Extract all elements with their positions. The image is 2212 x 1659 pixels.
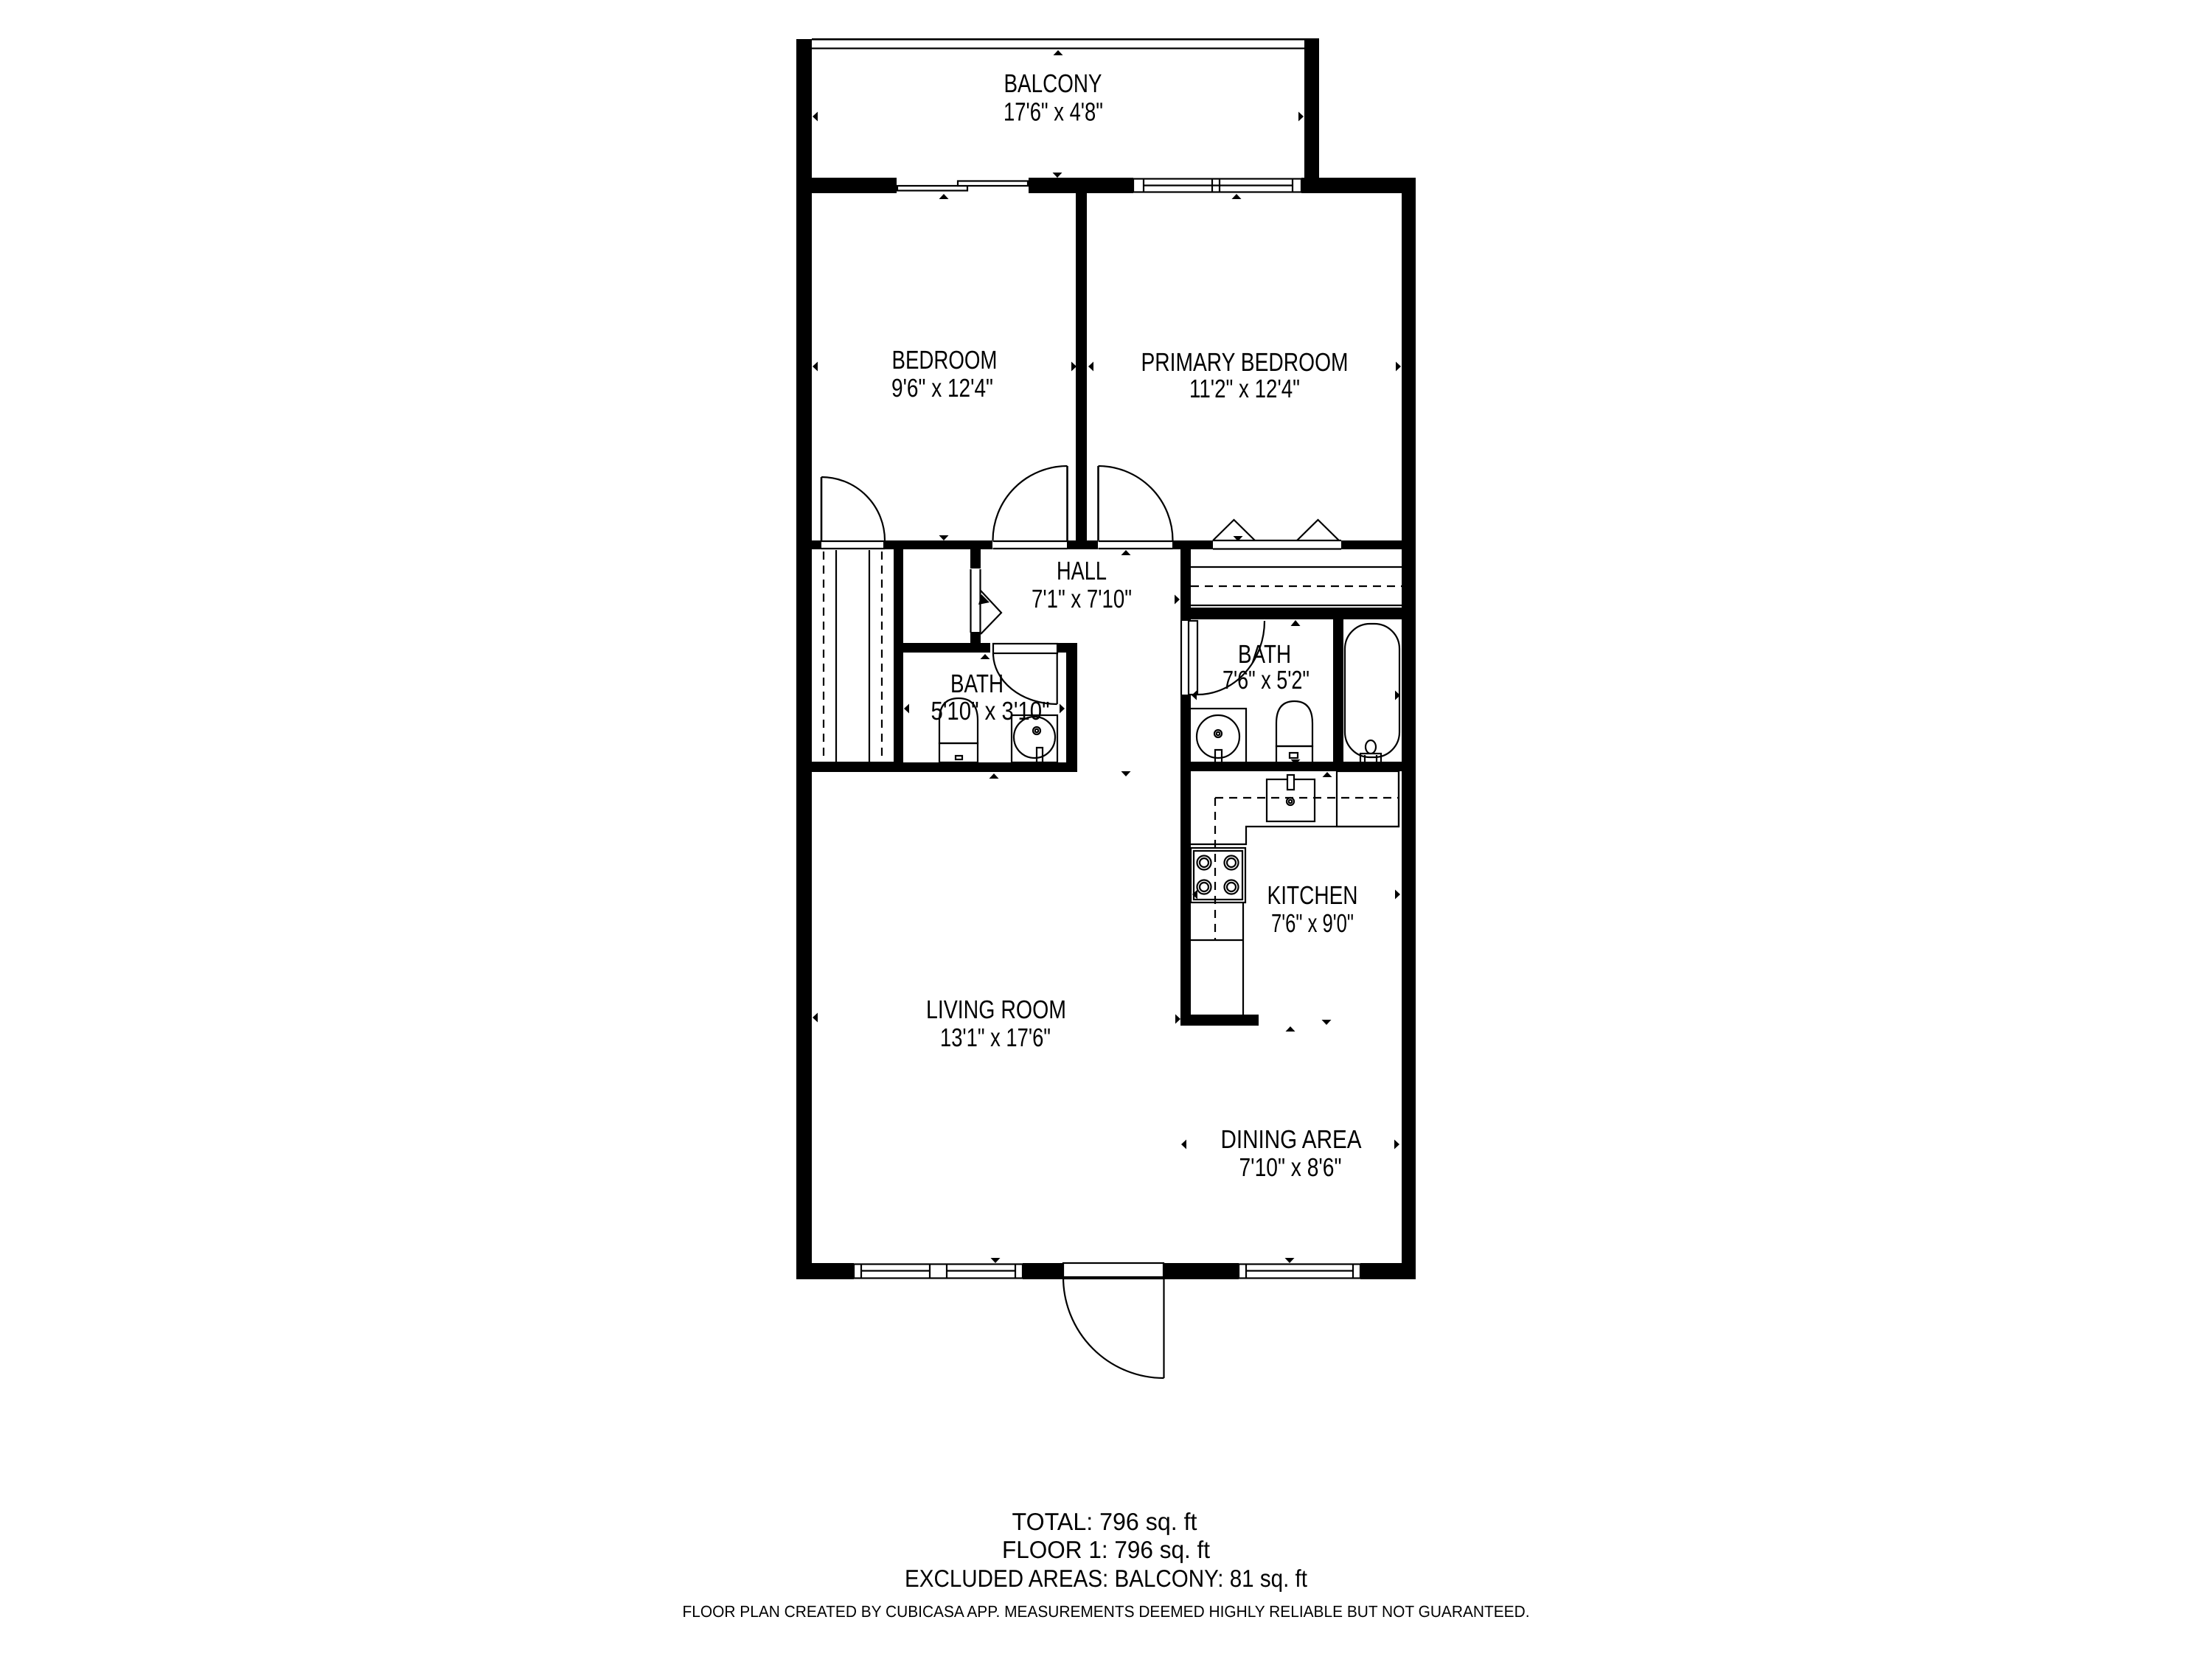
svg-text:7'6" x 5'2": 7'6" x 5'2" (1222, 666, 1310, 695)
svg-text:13'1" x 17'6": 13'1" x 17'6" (940, 1023, 1051, 1052)
svg-text:11'2" x 12'4": 11'2" x 12'4" (1189, 375, 1300, 403)
svg-text:BATH: BATH (1238, 640, 1291, 669)
svg-text:FLOOR PLAN CREATED BY CUBICASA: FLOOR PLAN CREATED BY CUBICASA APP. MEAS… (683, 1602, 1530, 1621)
svg-text:17'6" x 4'8": 17'6" x 4'8" (1004, 98, 1103, 127)
svg-text:7'1" x 7'10": 7'1" x 7'10" (1032, 585, 1132, 613)
svg-text:LIVING ROOM: LIVING ROOM (926, 995, 1066, 1024)
svg-text:DINING AREA: DINING AREA (1221, 1125, 1363, 1154)
svg-text:PRIMARY BEDROOM: PRIMARY BEDROOM (1141, 348, 1349, 377)
svg-text:5'10" x 3'10": 5'10" x 3'10" (931, 697, 1050, 726)
svg-text:KITCHEN: KITCHEN (1267, 881, 1358, 910)
svg-text:BATH: BATH (950, 669, 1004, 698)
svg-text:7'10" x 8'6": 7'10" x 8'6" (1239, 1153, 1342, 1182)
svg-text:EXCLUDED AREAS: BALCONY: 81 sq: EXCLUDED AREAS: BALCONY: 81 sq. ft (905, 1565, 1307, 1592)
svg-text:BEDROOM: BEDROOM (892, 346, 998, 375)
svg-text:FLOOR 1: 796 sq. ft: FLOOR 1: 796 sq. ft (1002, 1536, 1210, 1563)
svg-text:HALL: HALL (1057, 557, 1107, 585)
svg-text:7'6" x 9'0": 7'6" x 9'0" (1271, 909, 1354, 938)
svg-text:BALCONY: BALCONY (1004, 69, 1102, 98)
svg-text:9'6" x 12'4": 9'6" x 12'4" (891, 374, 993, 403)
svg-text:TOTAL: 796 sq. ft: TOTAL: 796 sq. ft (1012, 1508, 1197, 1535)
